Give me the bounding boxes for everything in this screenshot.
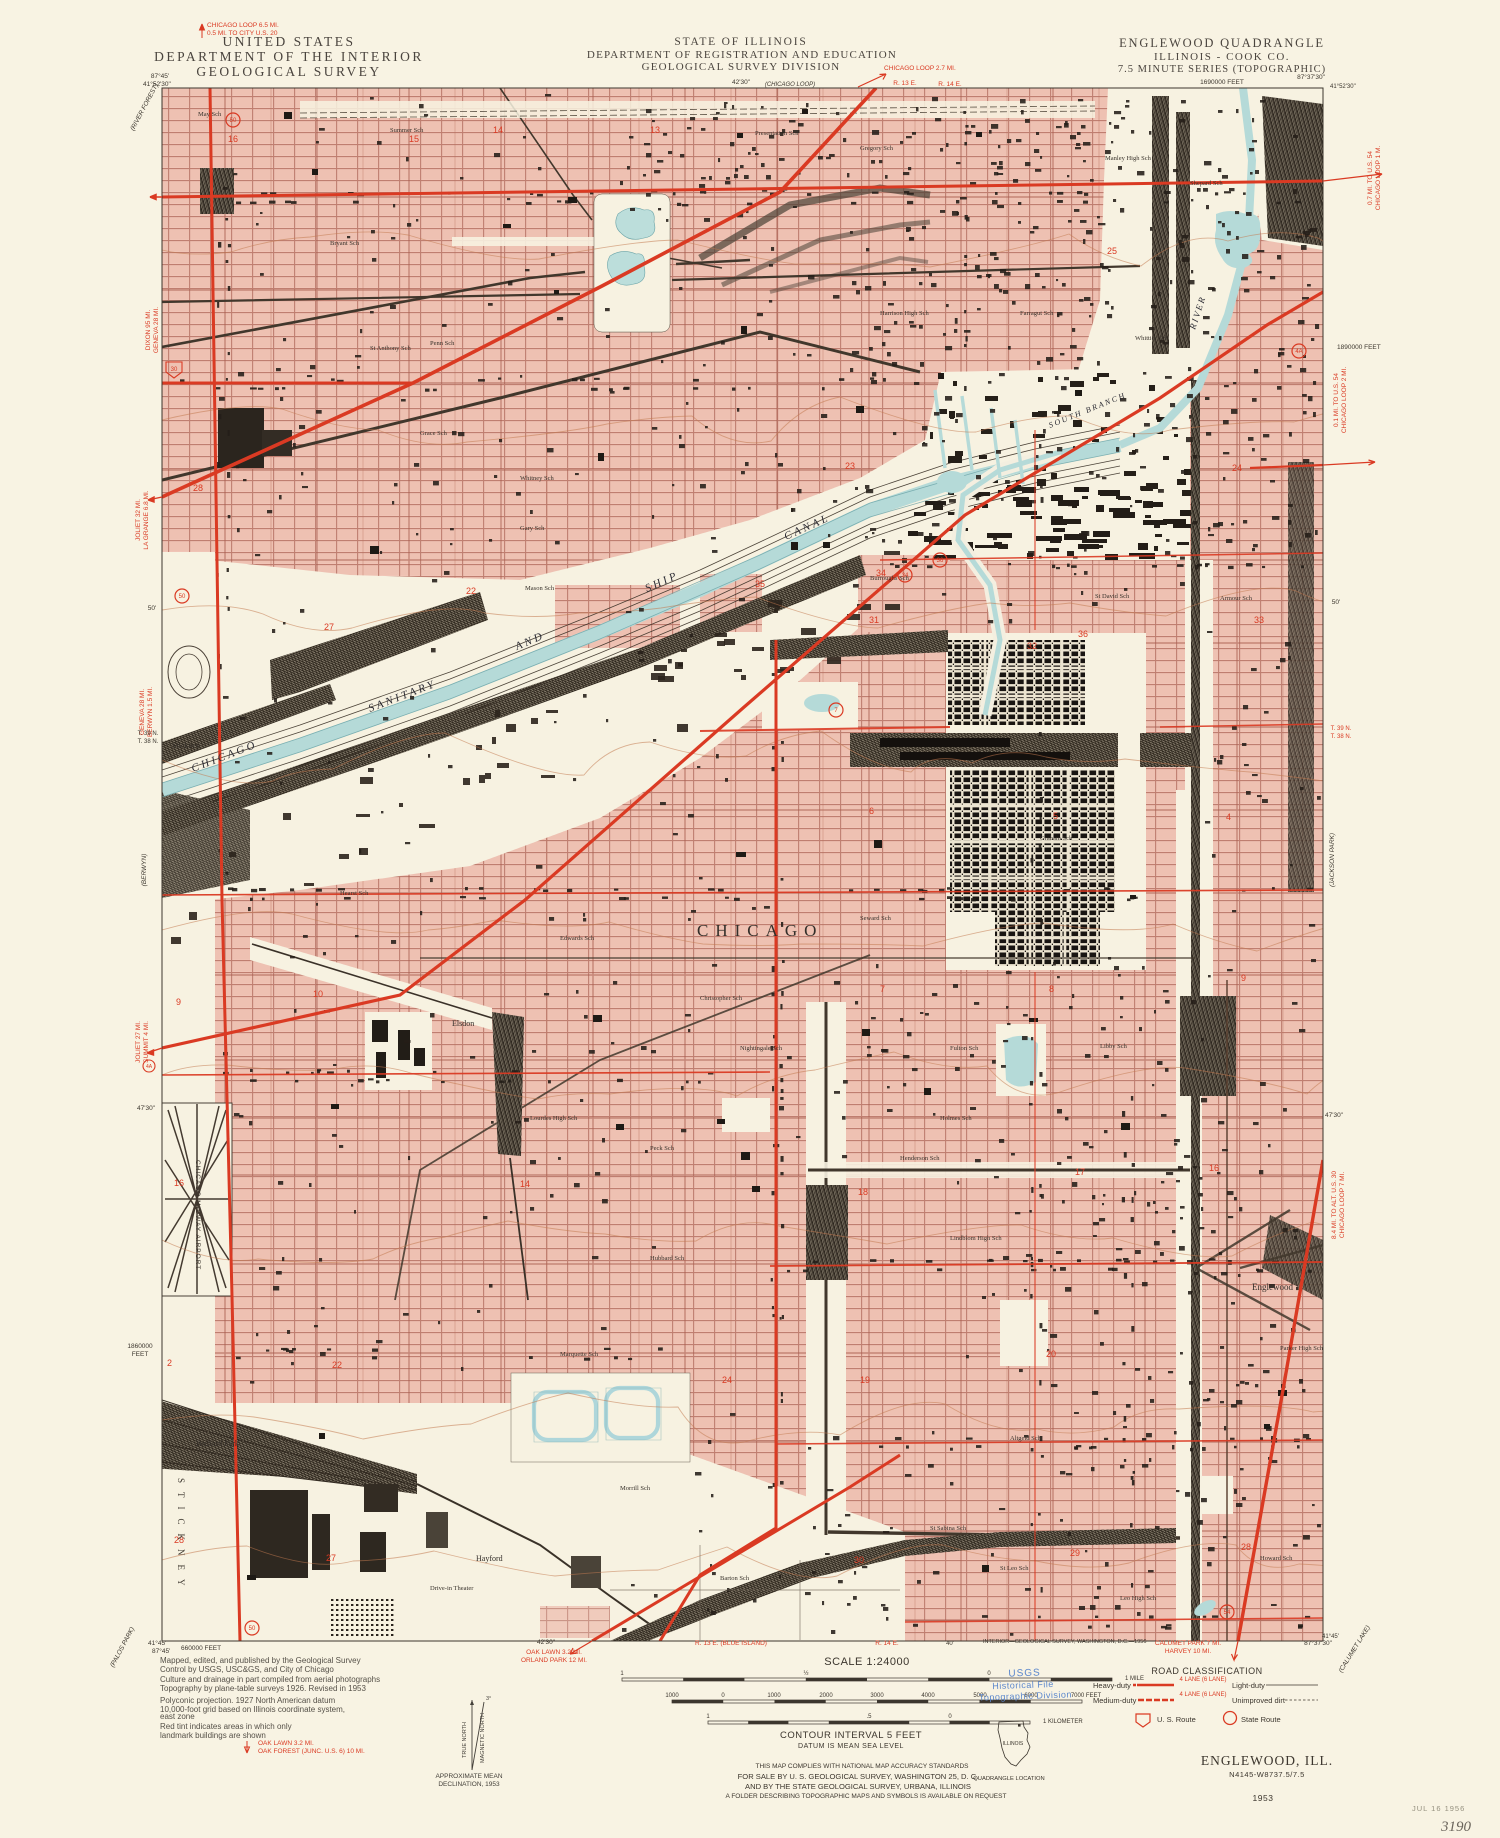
svg-text:east zone: east zone [160,1712,195,1721]
svg-text:DEPARTMENT OF REGISTRATION AND: DEPARTMENT OF REGISTRATION AND EDUCATION [587,49,897,61]
svg-text:St Leo Sch: St Leo Sch [1000,1565,1029,1572]
svg-text:Seward Sch: Seward Sch [860,915,892,922]
svg-text:Presentation Sch: Presentation Sch [755,130,799,137]
svg-text:HARVEY 10 MI.: HARVEY 10 MI. [1165,1648,1212,1655]
svg-text:St Sabina Sch: St Sabina Sch [930,1525,967,1532]
svg-text:Lindblom High Sch: Lindblom High Sch [950,1235,1002,1242]
svg-text:Heavy-duty: Heavy-duty [1093,1681,1131,1690]
svg-text:0.7 MI. TO U.S. 54: 0.7 MI. TO U.S. 54 [1367,151,1374,205]
svg-text:87°37'30": 87°37'30" [1304,1639,1333,1647]
svg-text:R. 14 E.: R. 14 E. [938,81,962,88]
svg-text:ILLINOIS - COOK CO.: ILLINOIS - COOK CO. [1154,51,1290,63]
svg-text:May Sch: May Sch [198,111,222,118]
svg-text:47'30": 47'30" [137,1105,156,1112]
svg-text:DECLINATION, 1953: DECLINATION, 1953 [438,1781,500,1788]
svg-text:Marquette Sch: Marquette Sch [560,1351,599,1358]
svg-text:STATE OF ILLINOIS: STATE OF ILLINOIS [674,36,807,48]
svg-text:8.4 MI. TO ALT. U.S. 30: 8.4 MI. TO ALT. U.S. 30 [1331,1171,1338,1239]
svg-text:1953: 1953 [1253,1793,1274,1803]
svg-text:Whittier Sch: Whittier Sch [1135,335,1169,342]
svg-text:1000: 1000 [767,1693,781,1699]
svg-text:Unimproved dirt: Unimproved dirt [1232,1696,1286,1705]
svg-text:Medium-duty: Medium-duty [1093,1696,1137,1705]
svg-text:N4145-W8737.5/7.5: N4145-W8737.5/7.5 [1229,1770,1305,1779]
svg-text:FOR SALE BY U. S. GEOLOGICAL S: FOR SALE BY U. S. GEOLOGICAL SURVEY, WAS… [738,1772,979,1781]
svg-text:GEOLOGICAL SURVEY: GEOLOGICAL SURVEY [196,64,381,79]
svg-text:36: 36 [1078,629,1088,639]
svg-text:Nightingale Sch: Nightingale Sch [740,1045,783,1052]
svg-text:Harrison High Sch: Harrison High Sch [880,310,929,317]
svg-text:9: 9 [1241,973,1246,983]
svg-text:3190: 3190 [1440,1819,1472,1835]
svg-text:4A: 4A [146,1064,153,1070]
svg-text:Drive-in Theater: Drive-in Theater [430,1585,474,1592]
svg-text:33: 33 [1254,615,1264,625]
svg-text:2: 2 [167,1358,172,1368]
svg-text:1690000 FEET: 1690000 FEET [1200,79,1244,86]
svg-text:CONTOUR INTERVAL 5 FEET: CONTOUR INTERVAL 5 FEET [780,1730,922,1741]
svg-text:JOLIET 32 MI.: JOLIET 32 MI. [135,499,142,541]
svg-text:Farragut Sch: Farragut Sch [1020,310,1054,317]
svg-text:2000: 2000 [819,1693,833,1699]
svg-text:Edwards Sch: Edwards Sch [560,935,595,942]
svg-text:CHICAGO LOOP 6.5 MI.: CHICAGO LOOP 6.5 MI. [207,22,279,29]
svg-text:BERWYN 1.5 MI.: BERWYN 1.5 MI. [147,687,154,737]
svg-text:41°45': 41°45' [1322,1634,1339,1640]
svg-text:1860000: 1860000 [127,1343,153,1350]
svg-text:CHICAGO LOOP 7 MI.: CHICAGO LOOP 7 MI. [1339,1172,1346,1239]
svg-text:CHICAGO: CHICAGO [697,921,823,940]
svg-text:½: ½ [803,1670,808,1677]
svg-text:ROAD CLASSIFICATION: ROAD CLASSIFICATION [1151,1666,1262,1676]
svg-text:ILLINOIS: ILLINOIS [1003,1741,1024,1747]
svg-text:T. 38 N.: T. 38 N. [138,739,159,745]
svg-text:87°45': 87°45' [152,1647,170,1655]
svg-text:State Route: State Route [1241,1715,1281,1724]
svg-text:0.5 MI. TO CITY U.S. 20: 0.5 MI. TO CITY U.S. 20 [207,30,278,37]
svg-text:4000: 4000 [921,1693,935,1699]
svg-text:31: 31 [869,615,879,625]
svg-text:24: 24 [1232,463,1242,473]
svg-text:13: 13 [650,125,660,135]
svg-text:Mason Sch: Mason Sch [525,585,555,592]
svg-text:Hayford: Hayford [476,1554,503,1563]
svg-text:30: 30 [171,367,178,373]
svg-text:36: 36 [937,558,944,564]
svg-text:8: 8 [1049,984,1054,994]
svg-text:GENEVA 28 MI.: GENEVA 28 MI. [139,689,146,735]
svg-text:5: 5 [1053,811,1058,821]
svg-text:42'30": 42'30" [537,1639,556,1646]
svg-text:41°52'30": 41°52'30" [1330,84,1356,90]
svg-text:CALUMET PARK 7 MI.: CALUMET PARK 7 MI. [1155,1640,1221,1647]
svg-text:Polyconic projection. 1927 Nor: Polyconic projection. 1927 North America… [160,1696,336,1705]
svg-text:R. 13 E. (BLUE ISLAND): R. 13 E. (BLUE ISLAND) [695,1640,767,1647]
svg-text:R. 13 E.: R. 13 E. [893,80,917,87]
svg-text:1000: 1000 [665,1693,679,1699]
svg-text:Hearst Sch: Hearst Sch [340,890,369,897]
svg-text:Penn Sch: Penn Sch [430,340,455,347]
svg-text:Armour Sch: Armour Sch [1220,595,1253,602]
svg-text:Red tint indicates areas in wh: Red tint indicates areas in which only [160,1722,292,1731]
svg-text:Englewood: Englewood [1252,1282,1293,1292]
svg-text:41°45': 41°45' [148,1639,166,1647]
svg-text:7: 7 [880,984,885,994]
svg-text:Christopher Sch: Christopher Sch [700,995,743,1002]
svg-text:4A: 4A [1295,349,1302,355]
svg-text:OAK FOREST (JUNC. U.S. 6) 10 M: OAK FOREST (JUNC. U.S. 6) 10 MI. [258,1748,365,1755]
svg-text:29: 29 [1070,1548,1080,1558]
svg-text:10: 10 [313,989,323,999]
svg-text:50: 50 [179,594,186,600]
svg-text:Parker High Sch: Parker High Sch [1280,1345,1324,1352]
svg-text:Manley High Sch: Manley High Sch [1105,155,1152,162]
svg-text:CHICAGO LOOP 2.7 MI.: CHICAGO LOOP 2.7 MI. [884,65,956,72]
svg-text:Leo High Sch: Leo High Sch [1120,1595,1157,1602]
svg-text:27: 27 [324,622,334,632]
svg-text:14: 14 [520,1179,530,1189]
svg-text:Henderson Sch: Henderson Sch [900,1155,940,1162]
svg-text:USGS: USGS [1008,1667,1041,1679]
svg-text:Elsdon: Elsdon [452,1019,474,1028]
svg-text:CHICAGO MIDWAY AIRPORT: CHICAGO MIDWAY AIRPORT [194,1160,201,1270]
svg-text:1 KILOMETER: 1 KILOMETER [1043,1719,1083,1725]
svg-text:Mapped, edited, and published: Mapped, edited, and published by the Geo… [160,1656,361,1665]
svg-text:Whitney Sch: Whitney Sch [520,475,555,482]
svg-text:Hubbard Sch: Hubbard Sch [650,1255,685,1262]
svg-text:Control by USGS, USC&GS, and C: Control by USGS, USC&GS, and City of Chi… [160,1665,334,1674]
svg-text:20: 20 [1046,1349,1056,1359]
svg-text:DATUM IS MEAN SEA LEVEL: DATUM IS MEAN SEA LEVEL [798,1743,904,1750]
svg-text:50: 50 [230,118,237,124]
svg-text:47'30": 47'30" [1325,1112,1344,1119]
svg-text:ENGLEWOOD, ILL.: ENGLEWOOD, ILL. [1201,1753,1333,1768]
svg-text:Graham Sch: Graham Sch [1040,835,1073,842]
svg-text:23: 23 [845,461,855,471]
svg-text:Topography by plane-table surv: Topography by plane-table surveys 1926. … [160,1684,366,1693]
svg-text:T. 38 N.: T. 38 N. [1331,734,1352,740]
svg-text:SCALE 1:24000: SCALE 1:24000 [824,1656,909,1668]
svg-text:DEPARTMENT OF THE INTERIOR: DEPARTMENT OF THE INTERIOR [154,49,424,64]
svg-text:50: 50 [249,1626,256,1632]
svg-text:GEOLOGICAL SURVEY DIVISION: GEOLOGICAL SURVEY DIVISION [642,61,841,73]
svg-text:16: 16 [228,134,238,144]
svg-text:27: 27 [326,1553,336,1563]
svg-text:FEET: FEET [132,1351,149,1358]
svg-text:25: 25 [1107,246,1117,256]
svg-text:24: 24 [722,1375,732,1385]
svg-text:APPROXIMATE MEAN: APPROXIMATE MEAN [435,1773,502,1780]
svg-text:87°37'30": 87°37'30" [1297,73,1326,81]
svg-text:4 LANE (6 LANE): 4 LANE (6 LANE) [1179,1692,1226,1698]
svg-text:Bedford Park: Bedford Park [196,1439,239,1448]
svg-text:ORLAND PARK 12 MI.: ORLAND PARK 12 MI. [521,1657,587,1664]
svg-text:GENEVA 28 MI.: GENEVA 28 MI. [153,307,160,353]
svg-text:1890000 FEET: 1890000 FEET [1337,344,1381,351]
svg-text:R. 14 E.: R. 14 E. [875,1640,899,1647]
svg-text:14: 14 [493,125,503,135]
svg-text:Burroughs Sch: Burroughs Sch [870,575,910,582]
svg-text:32: 32 [1027,641,1037,651]
svg-text:QUADRANGLE LOCATION: QUADRANGLE LOCATION [973,1776,1044,1782]
svg-text:42'30": 42'30" [732,79,751,86]
svg-text:28: 28 [1241,1542,1251,1552]
svg-text:50': 50' [148,605,156,612]
svg-text:A FOLDER DESCRIBING TOPOGRAPHI: A FOLDER DESCRIBING TOPOGRAPHIC MAPS AND… [726,1793,1007,1800]
svg-text:Libby Sch: Libby Sch [1100,1043,1128,1050]
svg-text:35: 35 [755,579,765,589]
svg-text:CHICAGO LOOP 2 MI.: CHICAGO LOOP 2 MI. [1341,367,1348,434]
svg-text:40': 40' [946,1641,954,1647]
svg-text:30: 30 [854,1555,864,1565]
svg-text:.5: .5 [866,1714,872,1720]
svg-text:Stickney: Stickney [172,741,200,750]
svg-text:22: 22 [466,586,476,596]
svg-text:Gary Sch: Gary Sch [520,525,545,532]
svg-text:U. S. Route: U. S. Route [1157,1715,1196,1724]
svg-text:St David Sch: St David Sch [1095,593,1130,600]
svg-text:Fulton Sch: Fulton Sch [950,1045,979,1052]
svg-text:Howard Sch: Howard Sch [1260,1555,1293,1562]
svg-text:3°: 3° [486,1696,491,1702]
svg-text:Grace Sch: Grace Sch [420,430,448,437]
svg-text:16: 16 [1209,1163,1219,1173]
svg-text:28: 28 [193,483,203,493]
svg-text:0.1 MI. TO U.S. 54: 0.1 MI. TO U.S. 54 [1333,373,1340,427]
svg-text:THIS MAP COMPLIES WITH NATIONA: THIS MAP COMPLIES WITH NATIONAL MAP ACCU… [756,1763,970,1770]
svg-text:16: 16 [174,1178,184,1188]
svg-text:22: 22 [332,1360,342,1370]
svg-text:DIXON 95 MI.: DIXON 95 MI. [145,310,152,351]
svg-text:Morrill Sch: Morrill Sch [620,1485,651,1492]
svg-text:17: 17 [1075,1167,1085,1177]
svg-text:MAGNETIC NORTH: MAGNETIC NORTH [480,1713,486,1763]
svg-text:INTERIOR—GEOLOGICAL SURVEY, WA: INTERIOR—GEOLOGICAL SURVEY, WASHINGTON, … [983,1639,1146,1645]
svg-text:TRUE NORTH: TRUE NORTH [462,1722,468,1758]
svg-text:4: 4 [1226,812,1231,822]
svg-text:Peck Sch: Peck Sch [650,1145,675,1152]
svg-text:Gregory Sch: Gregory Sch [860,145,894,152]
svg-text:JOLIET 27 MI.: JOLIET 27 MI. [135,1021,142,1063]
svg-text:OAK LAWN 3.2 MI.: OAK LAWN 3.2 MI. [258,1740,314,1747]
svg-text:Summer Sch: Summer Sch [390,127,424,134]
svg-text:SUMMIT 4 MI.: SUMMIT 4 MI. [143,1021,150,1063]
svg-text:9: 9 [176,997,181,1007]
svg-text:50': 50' [1332,599,1340,606]
svg-text:Bryant Sch: Bryant Sch [330,240,360,247]
svg-text:18: 18 [858,1187,868,1197]
svg-text:landmark buildings are shown: landmark buildings are shown [160,1731,266,1740]
svg-text:6: 6 [869,806,874,816]
svg-text:Culture and drainage in part c: Culture and drainage in part compiled fr… [160,1675,380,1684]
svg-text:(BERWYN): (BERWYN) [141,854,148,887]
svg-text:19: 19 [860,1375,870,1385]
svg-text:AND BY THE STATE GEOLOGICAL SU: AND BY THE STATE GEOLOGICAL SURVEY, URBA… [745,1782,971,1791]
svg-text:T. 39 N.: T. 39 N. [1331,726,1352,732]
svg-text:Shepard Sch: Shepard Sch [1190,180,1223,187]
svg-text:Barton Sch: Barton Sch [720,1575,750,1582]
svg-text:ENGLEWOOD QUADRANGLE: ENGLEWOOD QUADRANGLE [1119,36,1325,50]
svg-text:54: 54 [1224,1610,1231,1616]
svg-text:Holmes Sch: Holmes Sch [940,1115,972,1122]
svg-text:Light-duty: Light-duty [1232,1681,1265,1690]
svg-text:4 LANE (6 LANE): 4 LANE (6 LANE) [1179,1677,1226,1683]
svg-text:St Anthony Sch: St Anthony Sch [370,345,412,352]
svg-text:(CHICAGO LOOP): (CHICAGO LOOP) [765,82,815,88]
svg-text:7.5 MINUTE SERIES (TOPOGRAPHIC: 7.5 MINUTE SERIES (TOPOGRAPHIC) [1118,64,1326,75]
svg-text:15: 15 [409,134,419,144]
svg-text:3000: 3000 [870,1693,884,1699]
svg-text:STICKNEY: STICKNEY [176,1478,186,1595]
svg-text:87°45': 87°45' [151,72,169,80]
svg-text:660000 FEET: 660000 FEET [181,1645,221,1652]
svg-text:Altgeld Sch: Altgeld Sch [1010,1435,1042,1442]
svg-text:Lourdes High Sch: Lourdes High Sch [530,1115,578,1122]
svg-text:JUL 16 1956: JUL 16 1956 [1412,1804,1465,1813]
svg-text:T. 39 N.: T. 39 N. [138,731,159,737]
svg-text:(JACKSON PARK): (JACKSON PARK) [1329,833,1336,887]
